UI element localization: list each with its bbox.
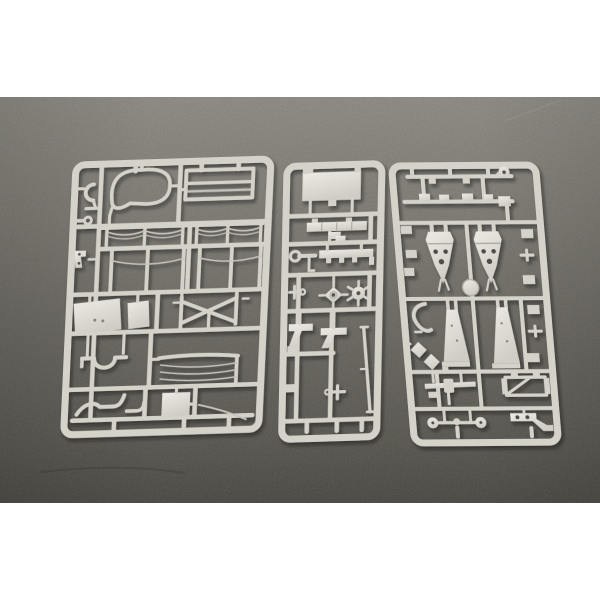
part-round-disc — [462, 279, 479, 295]
photo-area — [0, 97, 600, 503]
sprue-photo — [0, 97, 600, 503]
photo-page — [0, 0, 600, 600]
